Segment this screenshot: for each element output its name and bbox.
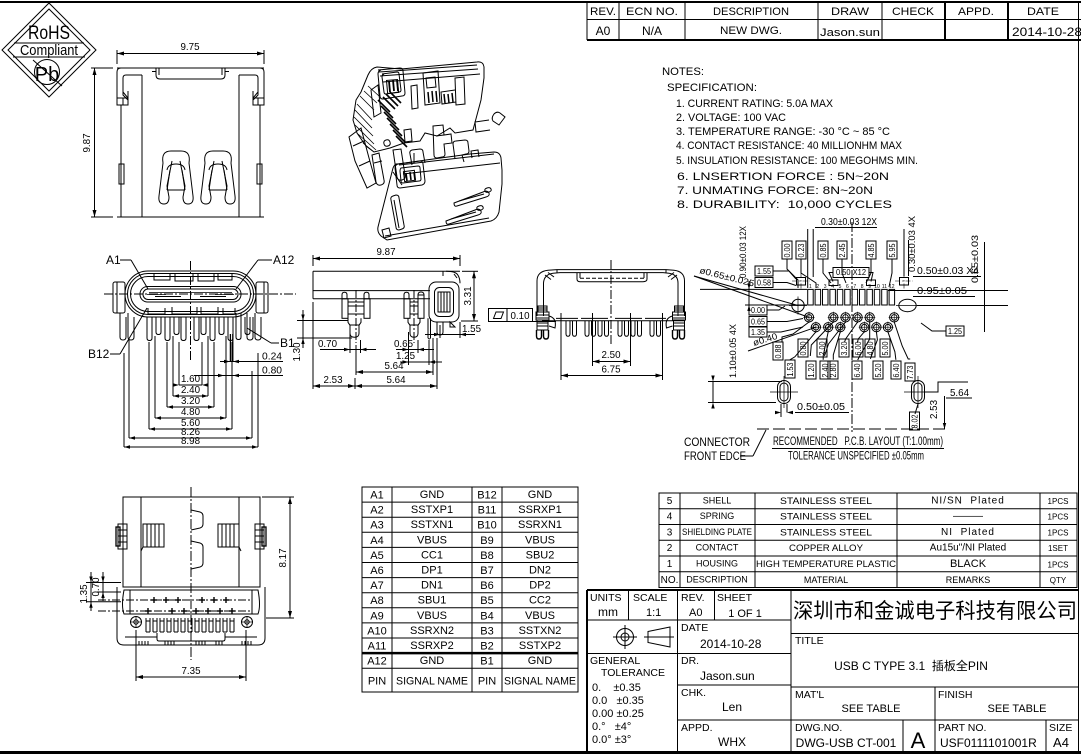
svg-text:DRAW: DRAW	[831, 6, 870, 18]
svg-text:B8: B8	[480, 550, 493, 562]
svg-text:1.53: 1.53	[786, 362, 795, 376]
svg-text:1.35: 1.35	[78, 584, 90, 603]
svg-text:B12: B12	[477, 490, 497, 502]
svg-text:2014-10-28: 2014-10-28	[700, 637, 762, 651]
svg-text:TOLERANCE: TOLERANCE	[601, 667, 665, 679]
svg-text:B6: B6	[480, 580, 493, 592]
svg-text:N/A: N/A	[642, 24, 662, 38]
svg-text:SIZE: SIZE	[1049, 722, 1072, 734]
svg-text:A6: A6	[370, 565, 383, 577]
svg-text:NEW DWG.: NEW DWG.	[720, 25, 782, 37]
svg-text:B11: B11	[478, 505, 497, 517]
svg-text:2.53: 2.53	[928, 400, 940, 419]
svg-text:8. DURABILITY: 10,000 CYCLES: 8. DURABILITY: 10,000 CYCLES	[677, 199, 892, 211]
svg-text:B4: B4	[480, 610, 493, 622]
svg-text:GND: GND	[420, 655, 445, 667]
svg-text:1.55: 1.55	[462, 323, 481, 335]
svg-text:5. INSULATION RESISTANCE: 100: 5. INSULATION RESISTANCE: 100 MEGOHMS MI…	[676, 155, 918, 167]
svg-text:DP1: DP1	[421, 565, 442, 577]
svg-text:PIN: PIN	[368, 676, 386, 688]
svg-text:SBU1: SBU1	[418, 595, 447, 607]
svg-text:6.40: 6.40	[853, 363, 862, 377]
svg-text:6.40: 6.40	[892, 363, 901, 377]
svg-text:3: 3	[667, 528, 673, 539]
svg-text:CONNECTOR: CONNECTOR	[684, 437, 750, 449]
svg-text:7.35: 7.35	[182, 665, 201, 677]
svg-text:7: 7	[853, 284, 856, 290]
svg-text:ECN NO.: ECN NO.	[626, 6, 678, 18]
svg-text:REMARKS: REMARKS	[946, 575, 991, 585]
svg-text:4. CONTACT RESISTANCE: 40 MILL: 4. CONTACT RESISTANCE: 40 MILLIONHM MAX	[676, 140, 902, 152]
svg-text:2.53: 2.53	[324, 374, 343, 386]
svg-text:SSTXN2: SSTXN2	[519, 625, 562, 637]
svg-text:0.85: 0.85	[819, 243, 828, 257]
svg-text:NI/SN Plated: NI/SN Plated	[931, 496, 1005, 507]
svg-text:1SET: 1SET	[1048, 544, 1068, 553]
svg-text:A3: A3	[370, 520, 383, 532]
svg-text:SSTXP2: SSTXP2	[519, 640, 561, 652]
svg-text:Jason.sun: Jason.sun	[820, 27, 880, 39]
svg-text:5.64: 5.64	[387, 374, 406, 386]
svg-text:VBUS: VBUS	[525, 534, 555, 546]
svg-text:PART NO.: PART NO.	[938, 722, 986, 734]
svg-text:DP2: DP2	[529, 580, 550, 592]
svg-text:6: 6	[846, 284, 849, 290]
svg-text:Len: Len	[722, 700, 742, 714]
svg-text:MATERIAL: MATERIAL	[804, 575, 848, 585]
svg-text:A8: A8	[370, 595, 383, 607]
svg-text:A11: A11	[368, 641, 387, 653]
svg-text:0.30±0.03 12X: 0.30±0.03 12X	[821, 217, 877, 228]
svg-text:A4: A4	[1053, 735, 1069, 750]
svg-text:VBUS: VBUS	[417, 610, 447, 622]
svg-text:REV.: REV.	[590, 6, 616, 18]
svg-text:A7: A7	[370, 580, 383, 592]
svg-text:DWG-USB CT-001: DWG-USB CT-001	[796, 736, 897, 750]
svg-text:SSRXP2: SSRXP2	[410, 640, 453, 652]
svg-text:B2: B2	[480, 641, 493, 653]
svg-text:SHELL: SHELL	[703, 496, 732, 506]
svg-text:DR.: DR.	[681, 655, 699, 667]
svg-text:1:1: 1:1	[646, 607, 661, 619]
svg-text:A10: A10	[367, 625, 387, 637]
svg-text:8.02: 8.02	[911, 414, 920, 428]
svg-text:A: A	[911, 728, 926, 753]
svg-text:6.75: 6.75	[602, 364, 621, 376]
svg-text:1PCS: 1PCS	[1048, 529, 1069, 538]
svg-text:0.50±0.03 X4: 0.50±0.03 X4	[917, 265, 979, 277]
svg-text:SSTXP1: SSTXP1	[411, 504, 453, 516]
svg-text:CONTACT: CONTACT	[696, 543, 739, 553]
svg-text:SSRXN1: SSRXN1	[518, 519, 562, 531]
svg-text:3.20: 3.20	[840, 341, 849, 355]
svg-text:0.90±0.03 12X: 0.90±0.03 12X	[738, 226, 748, 278]
svg-text:A1: A1	[370, 490, 383, 502]
svg-text:QTY: QTY	[1050, 576, 1067, 585]
svg-text:0.23: 0.23	[797, 243, 806, 257]
svg-text:2014-10-28: 2014-10-28	[1012, 25, 1081, 39]
svg-text:0.00 ±0.25: 0.00 ±0.25	[592, 708, 644, 720]
svg-text:3: 3	[824, 284, 827, 290]
svg-text:5.95: 5.95	[888, 243, 897, 257]
svg-text:B3: B3	[480, 625, 493, 637]
svg-text:A0: A0	[596, 24, 611, 38]
svg-text:0.° ±4°: 0.° ±4°	[592, 721, 631, 733]
svg-text:USB C TYPE 3.1 插板全PIN: USB C TYPE 3.1 插板全PIN	[834, 658, 988, 673]
svg-text:SSRXP1: SSRXP1	[518, 504, 561, 516]
svg-text:RECOMMENDED P.C.B. LAYOUT (T: RECOMMENDED P.C.B. LAYOUT (T:1.00mm)	[773, 436, 943, 448]
svg-text:0.70: 0.70	[90, 577, 102, 596]
svg-text:SPRING: SPRING	[700, 511, 735, 521]
svg-text:4: 4	[831, 284, 834, 290]
svg-text:CC1: CC1	[421, 549, 443, 561]
svg-text:1PCS: 1PCS	[1048, 497, 1069, 506]
svg-text:1.20: 1.20	[807, 363, 816, 377]
svg-text:DESCRIPTION: DESCRIPTION	[713, 6, 789, 18]
svg-text:SHEET: SHEET	[717, 592, 753, 604]
svg-text:DATE: DATE	[1027, 6, 1059, 18]
svg-text:NOTES:: NOTES:	[662, 66, 704, 78]
svg-text:6. LNSERTION FORCE : 5N~20N: 6. LNSERTION FORCE : 5N~20N	[677, 171, 889, 183]
svg-text:8: 8	[861, 284, 864, 290]
svg-text:RoHS: RoHS	[28, 23, 70, 44]
svg-text:5: 5	[839, 284, 842, 290]
svg-text:Compliant: Compliant	[20, 42, 79, 59]
svg-text:CHK.: CHK.	[681, 687, 706, 699]
svg-text:0.0° ±3°: 0.0° ±3°	[592, 734, 631, 746]
svg-text:1: 1	[809, 284, 812, 290]
svg-text:0.65: 0.65	[751, 318, 765, 327]
svg-text:STAINLESS STEEL: STAINLESS STEEL	[780, 528, 872, 538]
svg-text:9: 9	[868, 284, 871, 290]
svg-text:A1: A1	[106, 253, 121, 267]
svg-text:B10: B10	[477, 520, 497, 532]
svg-text:4.85: 4.85	[867, 243, 876, 257]
svg-text:5.20: 5.20	[874, 363, 883, 377]
svg-text:SCALE: SCALE	[633, 592, 667, 604]
svg-text:B12: B12	[88, 347, 110, 361]
svg-text:Au15u"/NI Plated: Au15u"/NI Plated	[930, 543, 1006, 554]
svg-text:1.35: 1.35	[751, 328, 765, 337]
svg-text:DESCRIPTION: DESCRIPTION	[686, 575, 748, 585]
svg-text:0.65: 0.65	[394, 338, 413, 350]
svg-text:A2: A2	[370, 505, 383, 517]
svg-text:Pb: Pb	[35, 64, 59, 86]
svg-text:STAINLESS STEEL: STAINLESS STEEL	[780, 496, 872, 506]
svg-text:DN2: DN2	[529, 565, 551, 577]
svg-text:TOLERANCE UNSPECIFIED ±0.05mm: TOLERANCE UNSPECIFIED ±0.05mm	[788, 451, 924, 463]
svg-text:0.0 ±0.35: 0.0 ±0.35	[592, 695, 644, 707]
svg-text:SEE TABLE: SEE TABLE	[988, 703, 1047, 715]
svg-text:1.55: 1.55	[757, 267, 771, 276]
svg-text:0.88: 0.88	[774, 344, 783, 358]
svg-text:DWG.NO.: DWG.NO.	[795, 722, 842, 734]
svg-text:2.80: 2.80	[829, 363, 838, 377]
svg-text:PIN: PIN	[478, 676, 496, 688]
svg-text:1 OF 1: 1 OF 1	[728, 608, 762, 620]
svg-text:SEE TABLE: SEE TABLE	[842, 703, 901, 715]
svg-text:SBU2: SBU2	[526, 549, 555, 561]
svg-text:SIGNAL NAME: SIGNAL NAME	[396, 676, 468, 688]
svg-text:COPPER ALLOY: COPPER ALLOY	[789, 543, 863, 553]
svg-text:5.64: 5.64	[950, 387, 969, 399]
svg-text:SSTXN1: SSTXN1	[411, 519, 454, 531]
svg-text:1.30: 1.30	[291, 342, 303, 361]
svg-text:1PCS: 1PCS	[1048, 561, 1069, 570]
svg-text:9.75: 9.75	[181, 41, 200, 53]
svg-text:GND: GND	[420, 489, 445, 501]
svg-text:B9: B9	[480, 535, 493, 547]
svg-text:2: 2	[816, 284, 819, 290]
svg-text:APPD.: APPD.	[681, 722, 713, 734]
svg-text:B1: B1	[480, 656, 493, 668]
svg-text:0.50 X12: 0.50 X12	[836, 268, 867, 277]
svg-text:DN1: DN1	[421, 580, 443, 592]
svg-text:WHX: WHX	[718, 735, 746, 749]
svg-text:STAINLESS STEEL: STAINLESS STEEL	[780, 512, 872, 522]
svg-text:FRONT EDCE: FRONT EDCE	[684, 451, 746, 463]
svg-text:DATE: DATE	[681, 622, 708, 634]
svg-text:SHIELDING PLATE: SHIELDING PLATE	[682, 527, 752, 537]
svg-text:VBUS: VBUS	[525, 610, 555, 622]
svg-text:CC2: CC2	[529, 595, 551, 607]
svg-text:0.10: 0.10	[511, 310, 530, 322]
svg-text:2.45: 2.45	[838, 243, 847, 257]
svg-text:深圳市和金诚电子科技有限公司: 深圳市和金诚电子科技有限公司	[793, 600, 1077, 623]
svg-text:NI Plated: NI Plated	[941, 527, 995, 538]
svg-text:CHECK: CHECK	[892, 6, 935, 18]
svg-text:NO.: NO.	[661, 575, 679, 586]
svg-text:A9: A9	[370, 610, 383, 622]
svg-text:APPD.: APPD.	[958, 6, 994, 18]
svg-text:USF0111101001R: USF0111101001R	[940, 736, 1037, 750]
svg-text:7. UNMATING FORCE: 8N~20N: 7. UNMATING FORCE: 8N~20N	[677, 185, 873, 197]
svg-text:0.58: 0.58	[757, 279, 771, 288]
svg-text:FINISH: FINISH	[938, 689, 972, 701]
svg-text:———: ———	[953, 511, 983, 522]
svg-text:8.98: 8.98	[181, 435, 200, 447]
svg-text:GND: GND	[528, 655, 553, 667]
svg-text:HIGH TEMPERATURE PLASTIC: HIGH TEMPERATURE PLASTIC	[756, 559, 897, 569]
svg-text:9.87: 9.87	[81, 133, 93, 152]
svg-text:BLACK: BLACK	[950, 558, 987, 570]
svg-text:0.00: 0.00	[783, 243, 792, 257]
svg-text:0.70: 0.70	[318, 338, 337, 350]
svg-text:8.17: 8.17	[277, 548, 289, 567]
svg-text:SPECIFICATION:: SPECIFICATION:	[667, 82, 757, 94]
svg-text:HOUSING: HOUSING	[696, 559, 738, 569]
svg-text:0. ±0.35: 0. ±0.35	[592, 682, 641, 694]
svg-text:A12: A12	[367, 656, 387, 668]
svg-text:2: 2	[667, 543, 673, 554]
svg-text:4: 4	[667, 512, 673, 523]
svg-text:0.24: 0.24	[262, 351, 282, 363]
svg-text:5.64: 5.64	[385, 360, 404, 372]
svg-text:SSRXN2: SSRXN2	[410, 625, 454, 637]
svg-text:A12: A12	[273, 253, 295, 267]
svg-text:MAT'L: MAT'L	[795, 689, 824, 701]
svg-text:1: 1	[667, 559, 673, 570]
svg-text:B5: B5	[480, 595, 493, 607]
svg-text:1PCS: 1PCS	[1048, 513, 1069, 522]
svg-text:3.31: 3.31	[462, 286, 474, 305]
svg-text:2.50: 2.50	[602, 349, 621, 361]
svg-text:5: 5	[667, 496, 673, 507]
svg-text:0.00: 0.00	[751, 306, 765, 315]
svg-text:2. VOLTAGE: 100 VAC: 2. VOLTAGE: 100 VAC	[676, 112, 786, 124]
svg-text:0.80: 0.80	[262, 365, 282, 377]
svg-text:TITLE: TITLE	[795, 635, 824, 647]
svg-text:mm: mm	[598, 605, 618, 619]
svg-text:11: 11	[882, 284, 887, 290]
svg-text:B7: B7	[480, 565, 493, 577]
svg-text:1. CURRENT RATING: 5.0A MAX: 1. CURRENT RATING: 5.0A MAX	[676, 98, 834, 110]
svg-text:VBUS: VBUS	[417, 534, 447, 546]
svg-text:9.87: 9.87	[377, 246, 396, 258]
svg-text:3. TEMPERATURE RANGE: -30 °C ~: 3. TEMPERATURE RANGE: -30 °C ~ 85 °C	[676, 126, 890, 138]
svg-text:GENERAL: GENERAL	[590, 655, 640, 667]
svg-text:SIGNAL NAME: SIGNAL NAME	[504, 676, 576, 688]
svg-text:GND: GND	[528, 489, 553, 501]
svg-text:A4: A4	[370, 535, 383, 547]
svg-text:A5: A5	[370, 550, 383, 562]
svg-text:REV.: REV.	[681, 592, 705, 604]
svg-text:1.25: 1.25	[948, 327, 962, 336]
svg-text:7.73: 7.73	[906, 365, 915, 379]
svg-text:A0: A0	[689, 607, 702, 619]
svg-text:Jason.sun: Jason.sun	[700, 669, 755, 683]
svg-text:1.10±0.05 4X: 1.10±0.05 4X	[728, 324, 738, 378]
svg-text:0.50±0.05: 0.50±0.05	[797, 402, 845, 413]
svg-text:UNITS: UNITS	[590, 592, 622, 604]
svg-text:5.00: 5.00	[881, 341, 890, 355]
